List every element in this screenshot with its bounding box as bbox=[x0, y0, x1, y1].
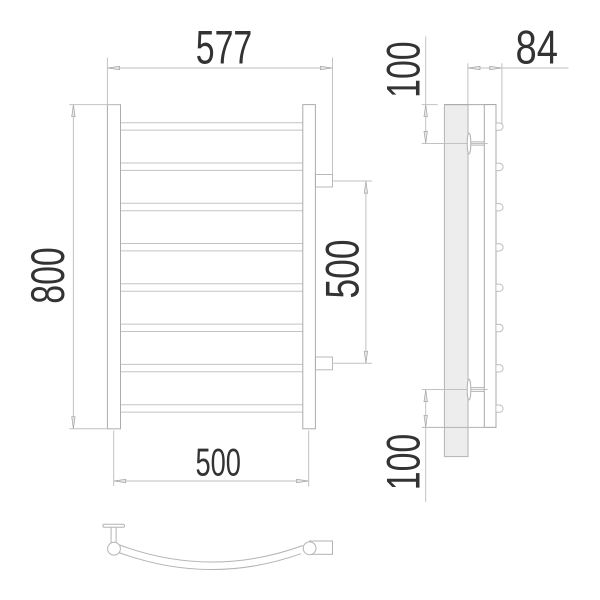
svg-text:100: 100 bbox=[377, 434, 430, 491]
svg-text:500: 500 bbox=[317, 240, 370, 299]
svg-text:500: 500 bbox=[195, 441, 241, 484]
svg-text:800: 800 bbox=[22, 247, 75, 304]
svg-text:100: 100 bbox=[377, 41, 430, 98]
svg-text:577: 577 bbox=[196, 21, 253, 74]
svg-text:84: 84 bbox=[516, 21, 559, 74]
